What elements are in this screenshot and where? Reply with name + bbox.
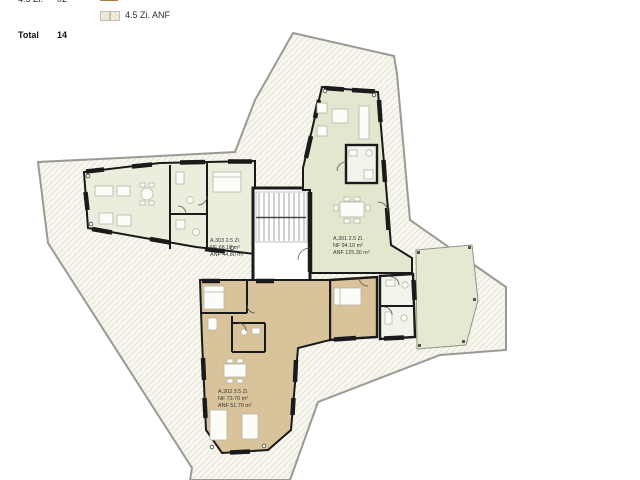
label-a303-title: A.303 2.5 Zi. xyxy=(210,238,241,244)
stairwell xyxy=(253,188,310,285)
label-a303-anf: ANF 44.80 m² xyxy=(210,252,244,258)
terrace-a301 xyxy=(416,245,478,349)
label-a302: A.302 3.5 Zi. NF 73.70 m² ANF 51.70 m² xyxy=(218,389,252,409)
legend-tan-swatch xyxy=(100,0,118,1)
bedroom-a302-east xyxy=(330,277,377,340)
label-a303-nf: NF 68.10 m² xyxy=(210,245,240,251)
label-a301-anf: ANF 125.30 m² xyxy=(333,250,370,256)
label-a301-nf: NF 94.10 m² xyxy=(333,243,363,249)
legend-anf-swatch-solid xyxy=(100,11,110,21)
legend-room-type: 4.5 Zi. xyxy=(18,0,43,4)
label-a301-title: A.301 2.5 Zi. xyxy=(333,236,364,242)
label-a303: A.303 2.5 Zi. NF 68.10 m² ANF 44.80 m² xyxy=(210,238,244,258)
legend-room-count: 02 xyxy=(57,0,67,4)
legend-anf-label: 4.5 Zi. ANF xyxy=(125,10,170,20)
legend-total-label: Total xyxy=(18,30,39,40)
legend-anf-swatch-hatched xyxy=(110,11,120,21)
label-a302-anf: ANF 51.70 m² xyxy=(218,403,252,409)
legend-right-label: 4.5 Zi. xyxy=(125,0,150,1)
label-a302-title: A.302 3.5 Zi. xyxy=(218,389,249,395)
legend-total-count: 14 xyxy=(57,30,67,40)
floor-plan-svg: A.303 2.5 Zi. NF 68.10 m² ANF 44.80 m² A… xyxy=(0,0,640,480)
label-a302-nf: NF 73.70 m² xyxy=(218,396,248,402)
